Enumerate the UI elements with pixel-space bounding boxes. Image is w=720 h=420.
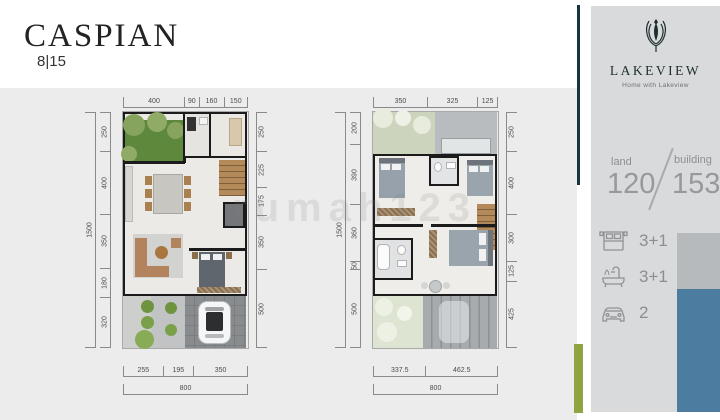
building-value: 153 [672,170,720,199]
dim-label: 50 [352,262,359,270]
dim-label: 800 [124,385,247,392]
pale-tree [375,298,393,316]
pillow [381,164,390,170]
bed-icon [599,229,628,254]
dim-segment: 350 [256,215,267,270]
sink [446,162,456,169]
dim-label: 500 [352,303,359,315]
chair [145,202,152,211]
lakeview-emblem-icon [639,16,673,60]
dim-ground-total-left: 1500 [85,112,96,348]
dim-upper-right: 250400300125425 [506,112,517,348]
car-rear-window [205,334,224,338]
dim-label: 360 [352,227,359,239]
dim-label: 1500 [337,222,344,238]
counter [187,117,196,131]
dim-label: 350 [259,237,266,249]
tree [147,112,167,132]
dim-segment: 225 [256,151,267,187]
wall [431,224,497,227]
dim-segment: 500 [350,269,361,348]
dim-ground-total-bottom: 800 [123,384,248,395]
stairs [219,160,245,196]
dim-segment: 175 [256,187,267,215]
dim-segment: 150 [224,97,249,108]
skylight [441,138,491,154]
sofa [135,266,169,277]
dim-upper-bottom: 337.5462.5 [373,366,498,377]
dim-segment: 350 [373,97,427,108]
shrub [165,324,177,336]
chair [145,189,152,198]
pillow [201,254,210,260]
dim-upper-left: 20039036050500 [350,112,361,348]
dim-segment: 360 [350,204,361,260]
dim-label: 400 [509,177,516,189]
shrub [135,330,154,349]
dim-label: 390 [352,169,359,181]
dim-label: 175 [259,195,266,207]
dim-label: 255 [124,367,163,374]
bed [379,158,405,198]
bed [467,160,493,196]
dim-segment: 500 [256,269,267,348]
patio-chair [421,282,428,289]
gray-color-block [677,233,720,289]
lot-number: 8|15 [37,53,66,70]
car-windshield [205,307,224,311]
shrub [165,302,177,314]
dim-upper-total-bottom: 800 [373,384,498,395]
brochure-page: CASPIAN 8|15 [0,0,720,420]
dim-segment: 50 [350,261,361,270]
dim-ground-top: 40090160150 [123,97,248,108]
car-roof [206,312,223,331]
green-accent-bar [574,344,583,413]
dim-segment: 425 [506,281,517,348]
carport-roof [423,296,497,348]
headboard [467,160,493,165]
tree [123,114,145,136]
dim-label: 337.5 [374,367,425,374]
dim-label: 800 [374,385,497,392]
building-label: building [674,154,712,166]
bathroom-count: 3+1 [639,267,668,287]
dim-label: 1500 [87,222,94,238]
tree [167,122,184,139]
dim-segment: 325 [427,97,477,108]
car-icon [599,301,628,326]
dim-segment: 1500 [335,112,346,348]
dim-label: 250 [509,126,516,138]
dim-label: 125 [509,265,516,277]
dim-label: 350 [374,98,427,105]
garden [125,120,183,163]
dim-label: 90 [185,98,199,105]
spec-bedrooms: 3+1 [599,228,668,254]
dim-label: 325 [428,98,477,105]
pillow [480,166,489,172]
dim-segment: 250 [100,112,111,151]
blue-color-block [677,289,720,412]
dim-label: 462.5 [426,367,497,374]
dim-label: 500 [259,303,266,315]
wardrobe [377,208,415,216]
dim-label: 320 [102,317,109,329]
dim-segment: 160 [199,97,224,108]
patio-table [429,280,442,293]
land-value: 120 [607,170,655,199]
pale-tree [373,108,393,128]
dim-label: 400 [124,98,184,105]
shrub [141,316,154,329]
bathroom [373,238,413,280]
dim-ground-right: 250225175350500 [256,112,267,348]
bathtub-icon [599,264,628,290]
dim-upper-total-left: 1500 [335,112,346,348]
maid-room [211,114,245,158]
shrub [141,300,154,313]
appliance [199,117,208,125]
wall [189,248,247,251]
headboard [488,230,493,266]
toilet [397,245,406,255]
daybed [229,118,242,146]
wall [373,224,423,227]
bed [199,252,225,290]
dim-label: 180 [102,277,109,289]
pale-tree [395,110,411,126]
headboard [379,158,405,163]
service-room [185,114,211,158]
pale-tree [377,322,397,342]
chair [184,189,191,198]
dim-segment: 400 [123,97,184,108]
bathroom [429,156,459,186]
pale-tree [413,116,431,134]
teal-accent-bar [577,5,580,185]
bathroom [223,202,245,228]
dim-ground-left: 250400350180320 [100,112,111,348]
dim-segment: 400 [100,151,111,213]
upper-floor-plan [373,112,498,348]
dim-label: 250 [102,126,109,138]
dim-segment: 462.5 [425,366,498,377]
pillow [469,166,478,172]
dim-segment: 800 [373,384,498,395]
spec-carport: 2 [599,300,648,326]
dim-segment: 250 [256,112,267,151]
car-under-roof [439,301,469,343]
roof-garden [373,112,435,154]
dim-label: 250 [259,126,266,138]
pillow [392,164,401,170]
kitchen-counter [125,166,133,222]
nightstand [226,252,232,259]
brand-tagline: Home with Lakeview [591,82,720,89]
wardrobe [197,287,241,293]
dim-segment: 200 [350,112,361,144]
patio-chair [443,282,450,289]
dim-segment: 255 [123,366,163,377]
land-building-block: land 120 building 153 [600,146,714,212]
chair [184,202,191,211]
pale-tree [397,306,412,321]
dining-table [153,174,183,214]
dim-label: 160 [200,98,224,105]
dim-label: 300 [509,232,516,244]
dim-segment: 320 [100,297,111,348]
spec-bathrooms: 3+1 [599,264,668,290]
sink [397,260,407,267]
bed [449,230,493,266]
dim-segment: 350 [100,214,111,269]
page-title: CASPIAN [24,18,179,55]
ground-floor-plan [123,112,248,348]
dim-segment: 90 [184,97,199,108]
dim-upper-top: 350325125 [373,97,498,108]
dim-segment: 250 [506,112,517,151]
dim-label: 125 [478,98,497,105]
dim-label: 350 [102,236,109,248]
wall [123,161,185,164]
pillow [479,249,486,261]
dim-segment: 400 [506,151,517,213]
pillow [479,233,486,245]
tree [121,146,137,162]
toilet [434,162,442,172]
carport-count: 2 [639,303,648,323]
dim-ground-bottom: 255195350 [123,366,248,377]
coffee-table [155,246,168,259]
flat-roof [435,112,497,158]
dim-segment: 337.5 [373,366,425,377]
dim-label: 200 [352,122,359,134]
brand-name: LAKEVIEW [591,63,720,79]
dim-label: 150 [225,98,248,105]
chair [184,176,191,185]
dim-segment: 125 [477,97,498,108]
land-label: land [611,156,632,168]
armchair [171,238,181,248]
dim-segment: 1500 [85,112,96,348]
dim-label: 225 [259,164,266,176]
dim-segment: 350 [193,366,248,377]
sofa [135,238,147,268]
wardrobe [429,230,437,258]
dim-label: 195 [164,367,194,374]
pillow [213,254,222,260]
bathtub [377,244,390,270]
dim-segment: 125 [506,261,517,281]
dim-segment: 800 [123,384,248,395]
dim-segment: 180 [100,268,111,297]
lawn [373,296,423,348]
chair [145,176,152,185]
dim-segment: 195 [163,366,194,377]
dim-segment: 390 [350,144,361,205]
dim-label: 425 [509,309,516,321]
car [198,301,231,344]
dim-label: 350 [194,367,247,374]
nightstand [192,252,198,259]
dim-segment: 300 [506,214,517,261]
dim-label: 400 [102,177,109,189]
bedroom-count: 3+1 [639,231,668,251]
